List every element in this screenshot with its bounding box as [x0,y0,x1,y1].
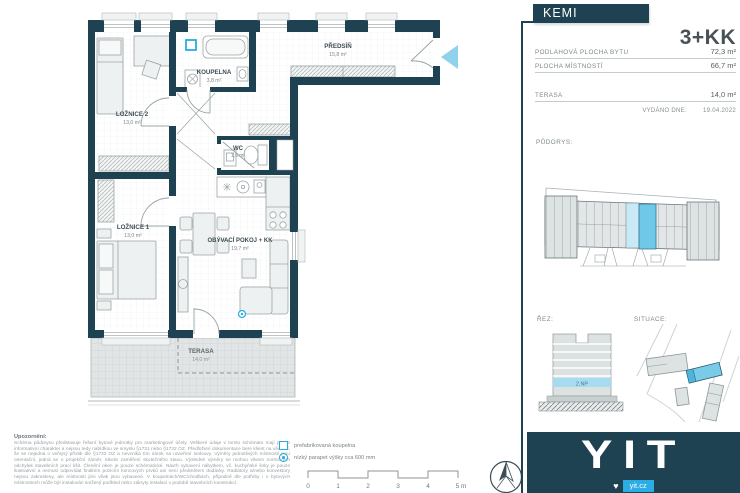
building-overview [538,160,726,272]
entrance-arrow-icon [441,45,458,69]
info-label: PLOCHA MÍSTNOSTÍ [535,63,603,70]
scale-tick: 3 [396,483,400,490]
svg-text:3,8 m²: 3,8 m² [207,78,222,84]
info-value: 72,3 m² [711,47,736,56]
floorplan-sheet: LOŽNICE 2 13,0 m² KOUPELNA 3,8 m² PŘEDSÍ… [0,0,740,493]
svg-text:13,0 m²: 13,0 m² [124,233,142,239]
svg-text:LOŽNICE 1: LOŽNICE 1 [117,223,150,231]
prefab-bathroom-icon [279,441,288,450]
scale-bar: 0 1 2 3 4 5 m [300,458,480,493]
scale-tick: 1 [336,483,340,490]
situation-plan [633,324,739,422]
issued-date-row: VYDÁNO DNE: 19.04.2022 [535,108,736,114]
info-row-rooms-area: PLOCHA MÍSTNOSTÍ 66,7 m² [535,58,736,73]
issued-date: 19.04.2022 [703,108,736,114]
disclaimer-body: Schéma půdorysu představuje řešení bytov… [14,441,290,486]
svg-text:19,7 m²: 19,7 m² [231,246,249,252]
svg-text:OBÝVACÍ POKOJ + KK: OBÝVACÍ POKOJ + KK [207,236,273,244]
section-label-pudorys: PŮDORYS: [536,139,573,146]
yit-logo: YIT [508,433,740,477]
project-name: KEMI [533,4,649,23]
disclaimer: Upozornění: Schéma půdorysu představuje … [14,434,290,486]
svg-text:14,0 m²: 14,0 m² [192,357,210,363]
website-row: ♥ yit.cz [527,480,740,492]
issued-label: VYDÁNO DNE: [642,108,687,114]
scale-tick: 5 m [456,483,467,490]
svg-text:13,0 m²: 13,0 m² [123,120,141,126]
info-row-terrace: TERASA 14,0 m² [535,87,736,102]
svg-text:KOUPELNA: KOUPELNA [197,69,232,76]
svg-text:LOŽNICE 2: LOŽNICE 2 [116,110,149,118]
svg-text:15,8 m²: 15,8 m² [329,52,347,58]
low-parapet-marker [239,311,246,318]
situation-highlighted-building [686,362,722,383]
svg-text:1,6 m²: 1,6 m² [231,153,246,159]
low-parapet-icon [279,453,288,462]
legend-label: prefabrikovaná koupelna [294,443,355,449]
panel-border-vertical [521,21,523,493]
legend-item-prefab-bathroom: prefabrikovaná koupelna [279,441,375,450]
building-section: 2.NP [537,330,625,422]
info-value: 66,7 m² [711,61,736,70]
info-label: TERASA [535,92,563,99]
svg-text:TERASA: TERASA [188,348,214,355]
floor-badge: 2.NP [576,382,589,388]
brand-footer: YIT ♥ yit.cz [527,432,740,493]
scale-tick: 2 [366,483,370,490]
shaft [277,140,293,170]
heart-icon: ♥ [613,482,618,491]
svg-text:WC: WC [233,146,244,152]
disclaimer-title: Upozornění: [14,434,290,440]
floor-plan-drawing: LOŽNICE 2 13,0 m² KOUPELNA 3,8 m² PŘEDSÍ… [0,0,520,430]
scale-tick: 0 [306,483,310,490]
section-label-situace: SITUACE: [634,316,667,323]
website-badge: yit.cz [623,480,654,492]
section-label-rez: ŘEZ: [537,316,553,323]
prefab-bathroom-marker [186,40,196,50]
scale-tick: 4 [426,483,430,490]
info-row-floor-area: PODLAHOVÁ PLOCHA BYTU 72,3 m² [535,44,736,59]
panel-border-horizontal [521,21,534,23]
situation-buildings [646,353,724,421]
svg-text:PŘEDSÍŇ: PŘEDSÍŇ [324,42,352,50]
info-label: PODLAHOVÁ PLOCHA BYTU [535,49,628,56]
info-value: 14,0 m² [711,90,736,99]
